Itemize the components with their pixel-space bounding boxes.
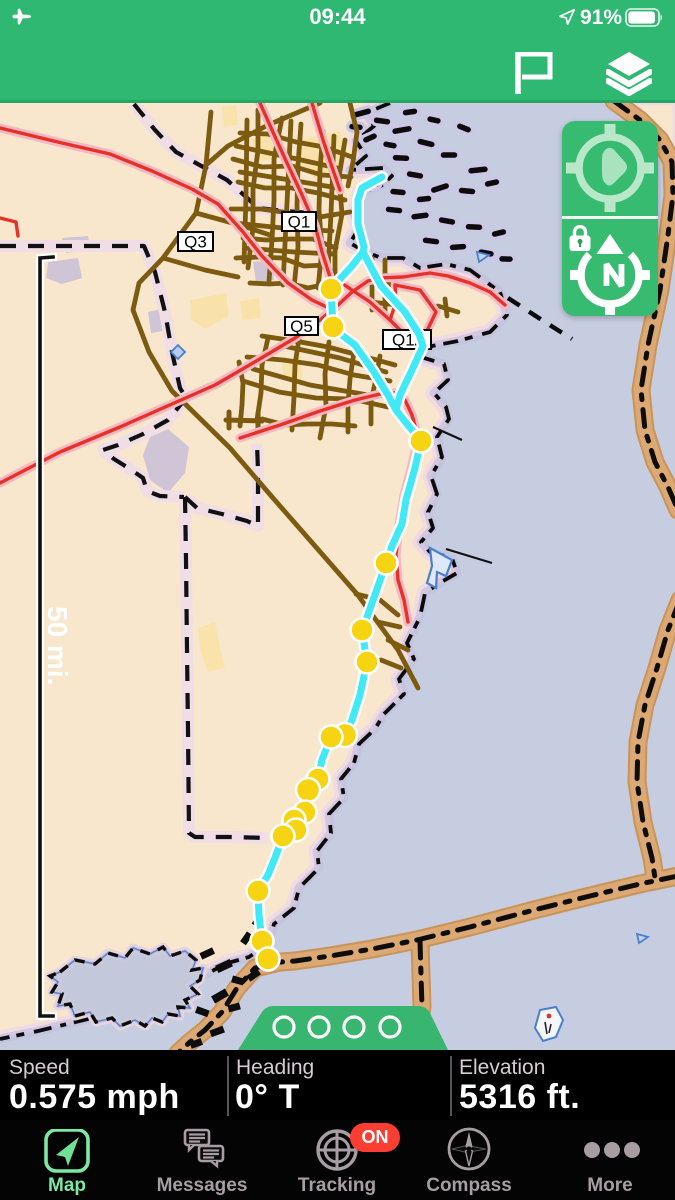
svg-text:Q3: Q3 [184, 233, 207, 252]
svg-text:50 mi.: 50 mi. [42, 606, 73, 685]
svg-text:Q1: Q1 [288, 213, 311, 232]
svg-text:Q5: Q5 [290, 317, 313, 336]
